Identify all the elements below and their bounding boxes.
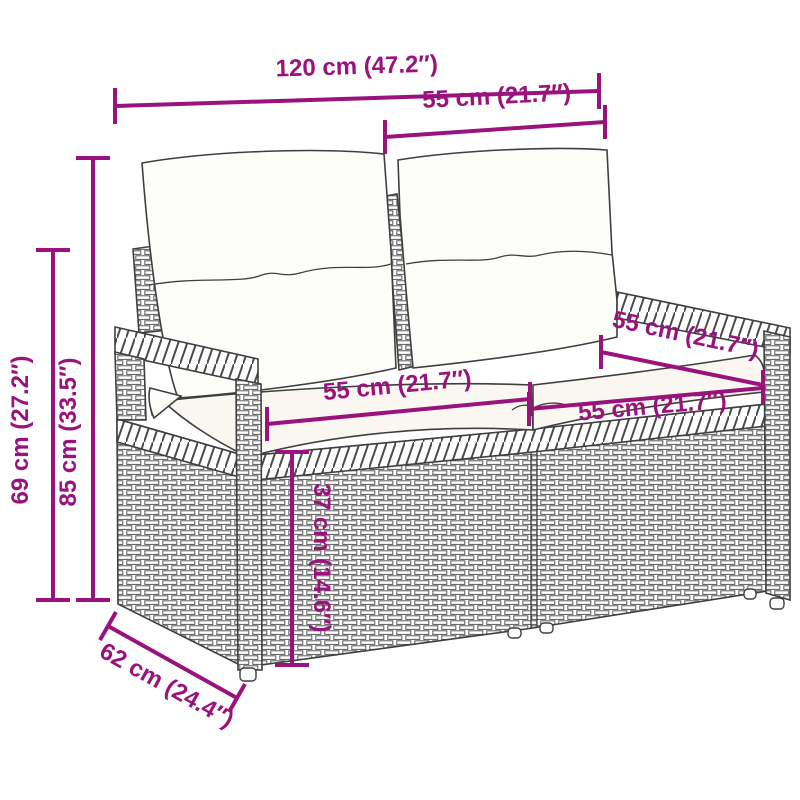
dim-label-total-width: 120 cm (47.2″) — [275, 50, 438, 82]
dim-label-seat-height: 37 cm (14.6″) — [308, 484, 335, 633]
sofa-dimension-drawing: 120 cm (47.2″) 55 cm (21.7″) 85 cm (33.5… — [0, 0, 800, 800]
dim-label-total-height: 85 cm (33.5″) — [55, 358, 82, 507]
foot-right — [744, 589, 756, 599]
left-armrest-side-panel — [115, 352, 146, 420]
dim-label-back-section-width: 55 cm (21.7″) — [422, 79, 572, 114]
right-back-cushion — [398, 148, 617, 368]
foot-far-right — [770, 598, 784, 609]
left-armrest-front-post — [236, 379, 262, 670]
foot-center-left — [508, 628, 521, 638]
dim-total-height: 85 cm (33.5″) — [55, 158, 110, 600]
dim-label-armrest-height: 69 cm (27.2″) — [7, 356, 34, 505]
foot-front-left — [240, 668, 256, 681]
foot-center-right — [540, 623, 553, 633]
dimension-diagram: 120 cm (47.2″) 55 cm (21.7″) 85 cm (33.5… — [0, 0, 800, 800]
right-armrest-side-panel — [764, 331, 790, 600]
